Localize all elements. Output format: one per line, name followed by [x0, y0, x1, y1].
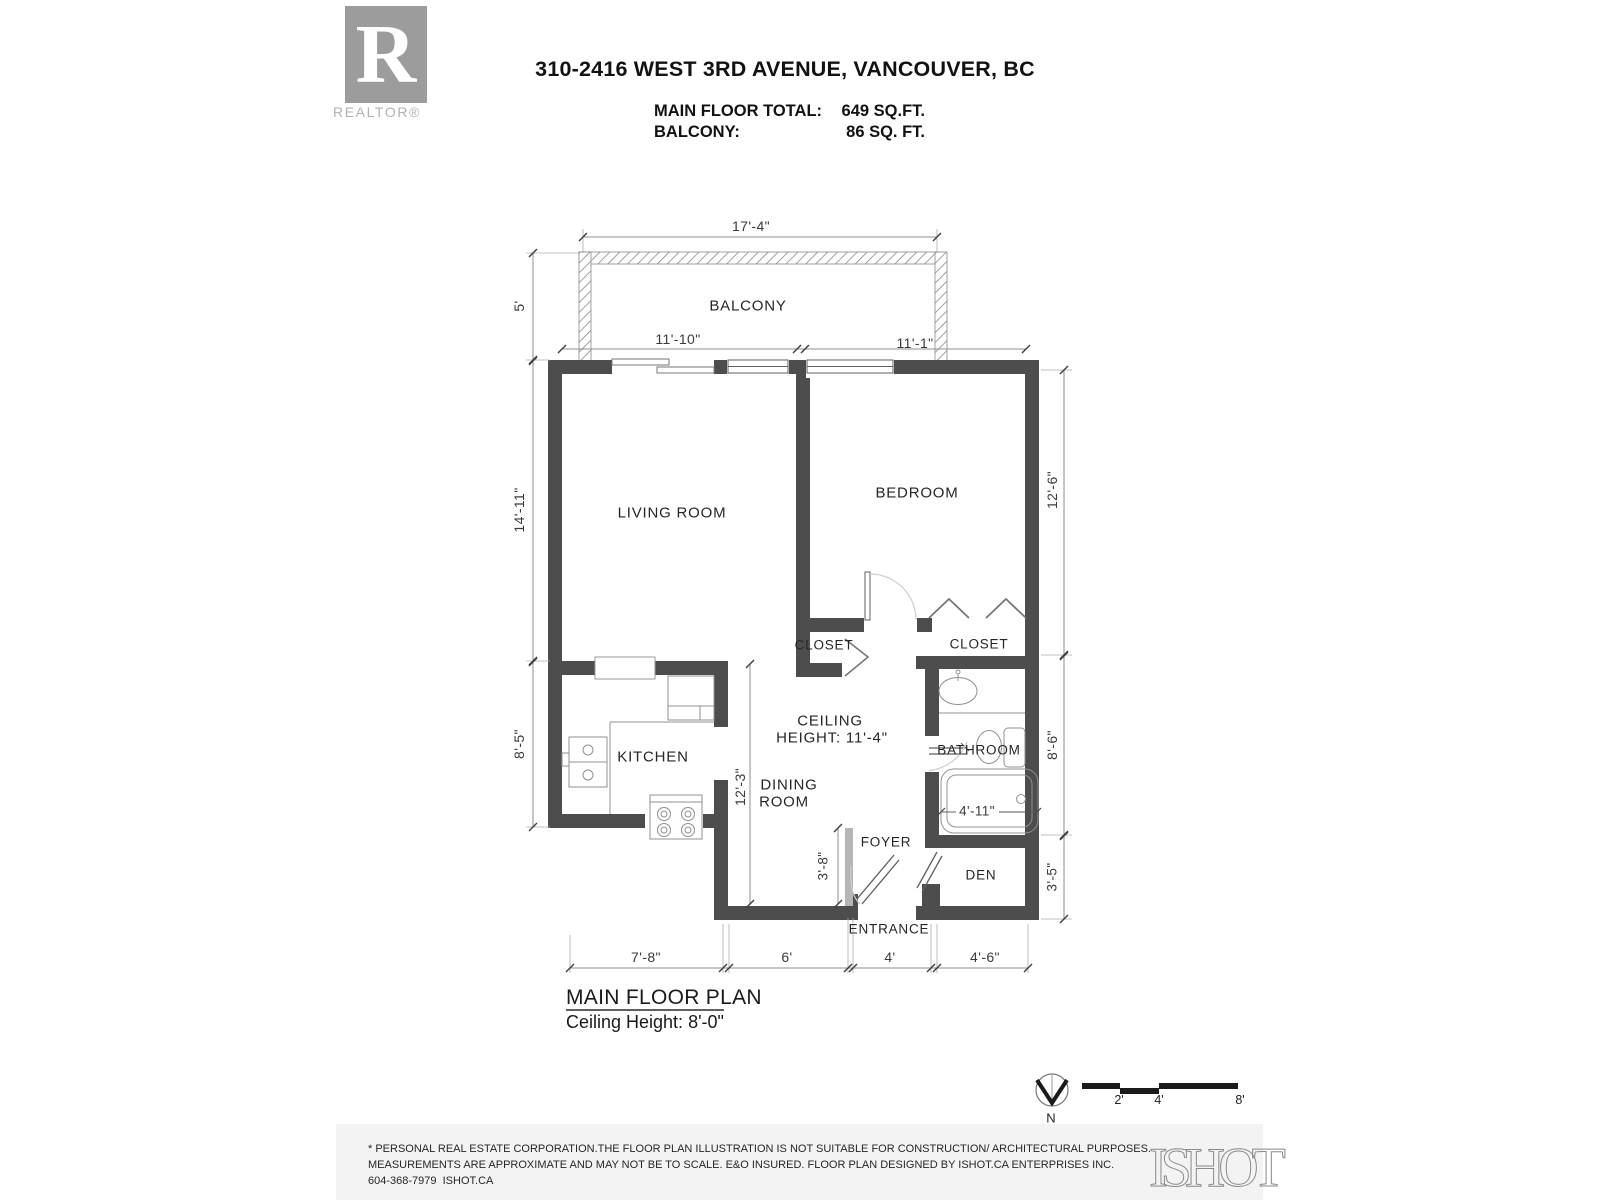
plan-title: MAIN FLOOR PLAN — [566, 986, 762, 1010]
room-label-bathroom: BATHROOM — [937, 743, 1020, 758]
dim-living-width: 11'-10" — [655, 331, 700, 347]
dim-tub-width: 4'-11" — [959, 804, 995, 819]
floorplan-page: R REALTOR® 310-2416 WEST 3RD AVENUE, VAN… — [0, 0, 1600, 1200]
dim-dining-height: 12'-3" — [732, 768, 748, 806]
dim-living-height: 14'-11" — [511, 487, 527, 532]
ceiling-note-line1: CEILING — [797, 713, 863, 730]
dim-bottom-dining: 6' — [781, 949, 792, 965]
room-label-bedroom: BEDROOM — [875, 485, 958, 502]
dim-bottom-den: 4'-6" — [970, 949, 1000, 965]
dim-bottom-kitchen: 7'-8" — [631, 949, 661, 965]
dim-bedroom-height: 12'-6" — [1044, 471, 1060, 509]
ceiling-note-line2: HEIGHT: 11'-4" — [776, 730, 888, 747]
floorplan-drawing: ISHOT — [0, 0, 1600, 1200]
ishot-logo: ISHOT — [1149, 1137, 1286, 1199]
north-arrow-icon — [1036, 1074, 1068, 1106]
dim-balcony-width: 17'-4" — [732, 218, 770, 234]
north-label: N — [1046, 1111, 1055, 1126]
foyer-pony-wall — [845, 828, 853, 906]
dim-kitchen-height: 8'-5" — [511, 729, 527, 759]
plan-ceiling-height: Ceiling Height: 8'-0" — [566, 1012, 724, 1033]
room-label-den: DEN — [966, 868, 997, 883]
room-label-entrance: ENTRANCE — [849, 922, 930, 937]
dim-balcony-depth: 5' — [511, 300, 527, 311]
room-label-dining-line1: DINING — [760, 777, 817, 794]
scale-label-8ft: 8' — [1235, 1093, 1244, 1107]
room-label-dining-line2: ROOM — [759, 794, 809, 811]
room-label-balcony: BALCONY — [709, 298, 786, 315]
dim-bottom-entrance: 4' — [884, 949, 895, 965]
room-label-foyer: FOYER — [861, 835, 912, 850]
dim-foyer-wall: 3'-8" — [816, 852, 831, 881]
room-label-closet-right: CLOSET — [950, 637, 1009, 652]
room-label-kitchen: KITCHEN — [617, 749, 688, 766]
room-label-living-room: LIVING ROOM — [618, 505, 727, 522]
scale-label-4ft: 4' — [1154, 1093, 1163, 1107]
dim-bedroom-width: 11'-1" — [896, 335, 933, 351]
dim-bathroom-height: 8'-6" — [1044, 730, 1060, 760]
scale-label-2ft: 2' — [1114, 1093, 1123, 1107]
dim-den-height: 3'-5" — [1045, 863, 1060, 892]
room-label-closet-left: CLOSET — [795, 638, 854, 653]
